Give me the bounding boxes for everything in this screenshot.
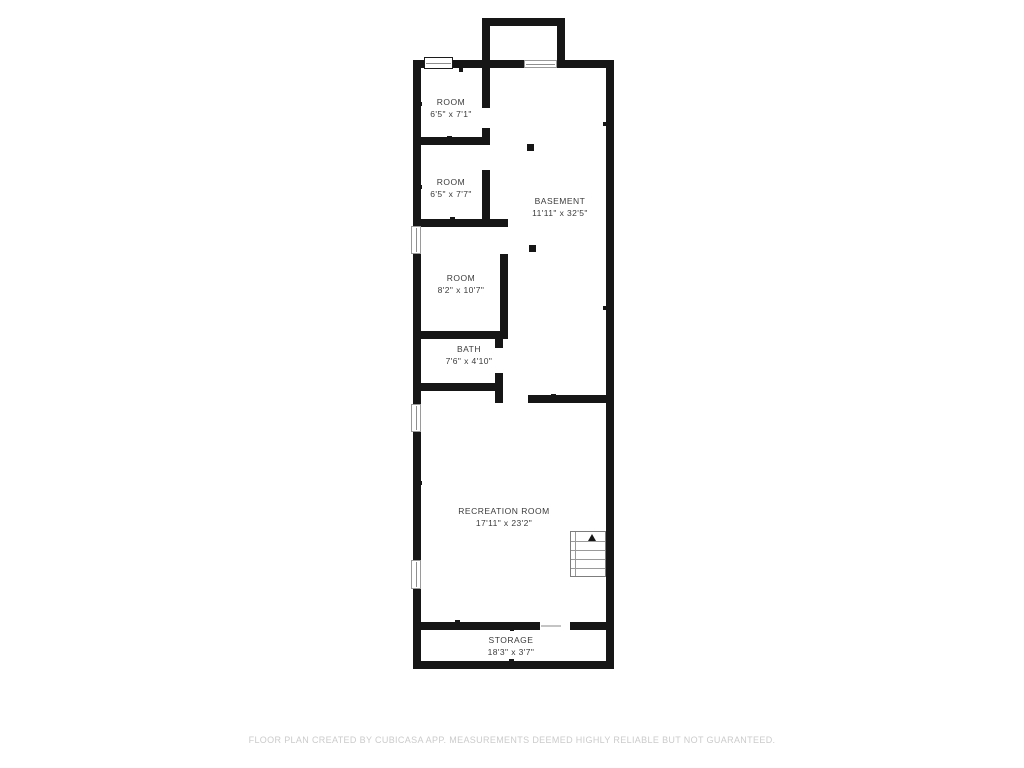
room-label-recreation-room: RECREATION ROOM 17'11" x 23'2" <box>458 506 549 529</box>
window-icon <box>411 404 421 432</box>
wall-segment <box>482 68 490 108</box>
wall-bath-bottom <box>413 383 503 391</box>
wall-room3-right <box>500 254 508 331</box>
footer-disclaimer: FLOOR PLAN CREATED BY CUBICASA APP. MEAS… <box>0 735 1024 745</box>
staircase-tread <box>571 541 605 542</box>
room-name: ROOM <box>430 177 472 189</box>
wall-tick <box>418 481 422 485</box>
wall-tick <box>603 122 607 126</box>
room-name: BATH <box>446 344 493 356</box>
exterior-wall-right <box>606 60 614 669</box>
wall-tick <box>417 300 421 304</box>
wall-tick <box>509 659 514 664</box>
support-post <box>527 144 534 151</box>
staircase-stringer <box>575 532 576 576</box>
wall-tick <box>450 217 455 222</box>
window-icon <box>411 560 421 589</box>
room-label-room-1: ROOM 6'5" x 7'1" <box>430 97 472 120</box>
wall-tick <box>418 185 422 189</box>
staircase-tread <box>571 550 605 551</box>
window-midline <box>416 562 417 587</box>
window-icon <box>524 60 557 68</box>
wall-tick <box>551 394 556 399</box>
wall-tick <box>417 643 421 647</box>
wall-tick <box>459 68 463 72</box>
bumpout-wall-top <box>482 18 565 26</box>
wall-room2-room3-divider <box>413 219 508 227</box>
window-midline <box>426 63 451 64</box>
wall-segment <box>482 170 490 219</box>
wall-tick <box>455 620 460 625</box>
window-midline <box>416 406 417 430</box>
wall-recreation-storage-right <box>570 622 614 630</box>
staircase-tread <box>571 559 605 560</box>
room-label-room-2: ROOM 6'5" x 7'7" <box>430 177 472 200</box>
staircase <box>570 531 606 577</box>
wall-room3-bath-divider <box>413 331 508 339</box>
wall-tick <box>603 306 607 310</box>
window-icon <box>424 57 453 69</box>
bumpout-wall-left <box>482 26 490 64</box>
room-dimensions: 17'11" x 23'2" <box>458 518 549 530</box>
room-label-bath: BATH 7'6" x 4'10" <box>446 344 493 367</box>
bumpout-wall-right <box>557 26 565 64</box>
wall-recreation-storage-left <box>413 622 540 630</box>
room-dimensions: 7'6" x 4'10" <box>446 356 493 368</box>
wall-bath-right-upper <box>495 339 503 348</box>
staircase-tread <box>571 568 605 569</box>
storage-doorway-threshold <box>541 625 561 627</box>
wall-tick <box>510 627 514 631</box>
support-post <box>529 245 536 252</box>
stairs-up-arrow-icon <box>588 534 596 541</box>
room-dimensions: 18'3" x 3'7" <box>488 647 535 659</box>
room-dimensions: 11'11" x 32'5" <box>532 208 588 220</box>
room-dimensions: 6'5" x 7'7" <box>430 189 472 201</box>
room-label-storage: STORAGE 18'3" x 3'7" <box>488 635 535 658</box>
window-icon <box>411 226 421 254</box>
exterior-wall-top-right-segment <box>557 60 614 68</box>
room-dimensions: 6'5" x 7'1" <box>430 109 472 121</box>
room-dimensions: 8'2" x 10'7" <box>438 285 485 297</box>
floor-plan: ROOM 6'5" x 7'1" ROOM 6'5" x 7'7" BASEME… <box>0 0 1024 768</box>
room-name: ROOM <box>430 97 472 109</box>
room-label-room-3: ROOM 8'2" x 10'7" <box>438 273 485 296</box>
window-midline <box>526 64 555 65</box>
room-label-basement: BASEMENT 11'11" x 32'5" <box>532 196 588 219</box>
room-name: BASEMENT <box>532 196 588 208</box>
room-name: RECREATION ROOM <box>458 506 549 518</box>
wall-tick <box>418 102 422 106</box>
window-midline <box>416 228 417 252</box>
wall-tick <box>447 136 452 141</box>
room-name: STORAGE <box>488 635 535 647</box>
room-name: ROOM <box>438 273 485 285</box>
wall-basement-bottom <box>528 395 614 403</box>
